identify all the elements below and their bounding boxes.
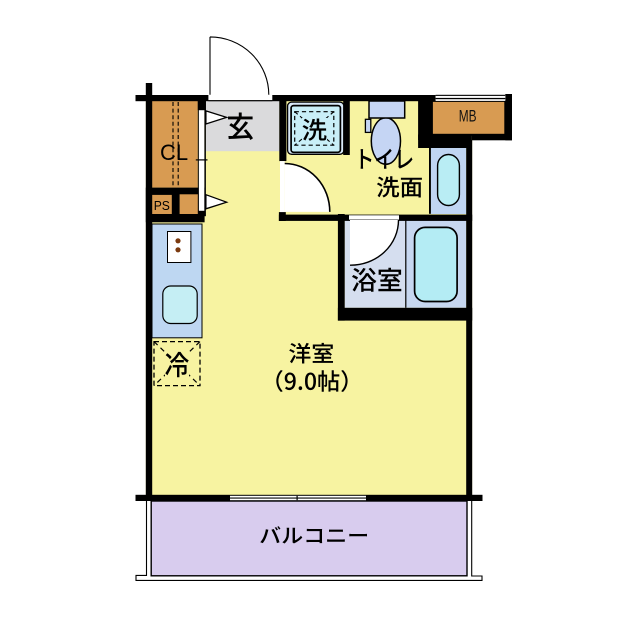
svg-text:MB: MB [459, 108, 477, 126]
svg-text:PS: PS [154, 198, 170, 213]
svg-text:CL: CL [160, 140, 188, 165]
